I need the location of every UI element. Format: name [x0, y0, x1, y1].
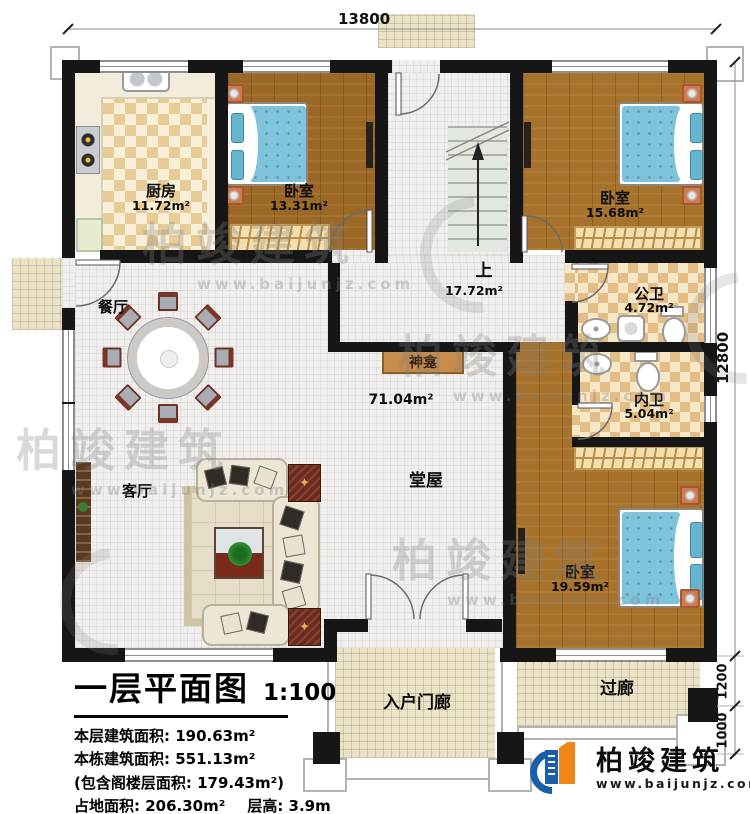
dimension-right: 12800: [714, 338, 732, 384]
logo-company-name: 柏竣建筑: [596, 747, 750, 777]
dining-chair: [103, 348, 122, 368]
bathroom-sink: [581, 318, 611, 340]
plan-scale: 1:100: [263, 680, 336, 706]
hall-label: 堂屋: [409, 466, 443, 491]
title-underline: [74, 715, 288, 718]
stat-building-area: 本栋建筑面积: 551.13m²: [74, 748, 374, 771]
nightstand: [680, 486, 700, 505]
window: [243, 60, 330, 73]
logo: 柏竣建筑 www.baijunjz.com: [528, 740, 750, 798]
corridor-column: [688, 688, 718, 722]
logo-icon: [528, 740, 588, 798]
living-label: 客厅: [122, 480, 152, 501]
bedroom-se-area: 19.59m²: [551, 579, 609, 594]
title-block: 一层平面图 1:100 本层建筑面积: 190.63m² 本栋建筑面积: 551…: [74, 662, 374, 814]
tv: [518, 528, 525, 574]
wall: [572, 437, 704, 447]
tv: [366, 122, 373, 168]
wall: [466, 619, 502, 632]
private-bath-area: 5.04m²: [624, 406, 673, 421]
wall: [328, 342, 520, 352]
window: [556, 648, 666, 662]
window: [100, 60, 188, 73]
dining-chair: [158, 292, 178, 311]
nightstand: [682, 186, 702, 205]
shower-unit: [617, 315, 645, 342]
floor-plan-page: ✦ ✦ 神龛: [0, 0, 750, 814]
window: [62, 404, 75, 470]
plan-title: 一层平面图: [74, 662, 249, 710]
side-table: ✦: [288, 608, 321, 646]
logo-website: www.baijunjz.com: [596, 776, 750, 791]
dining-table: [128, 318, 208, 398]
shrine-label: 神龛: [409, 352, 437, 372]
nightstand: [682, 84, 702, 103]
window: [62, 330, 75, 402]
bathroom-sink: [582, 353, 612, 375]
stat-floor-height: 层高: 3.9m: [247, 795, 330, 814]
dimension-right-1200: 1200: [716, 661, 731, 703]
stat-attic-area: (包含阁楼层面积: 179.43m²): [74, 772, 374, 795]
door-opening: [332, 250, 375, 263]
corridor-trim: [517, 726, 700, 740]
wall: [328, 250, 340, 352]
window: [125, 648, 273, 662]
dimension-top: 13800: [338, 10, 390, 28]
toilet: [634, 351, 658, 389]
wall: [375, 60, 388, 263]
door-opening: [572, 405, 580, 437]
kitchen-rug: [103, 92, 207, 250]
wardrobe: [574, 226, 702, 250]
wall: [100, 250, 332, 263]
dining-chair: [215, 348, 234, 368]
public-bath-area: 4.72m²: [624, 300, 673, 315]
sofa: [196, 458, 288, 502]
side-door-stoop: [12, 258, 62, 330]
tv-cabinet: [76, 462, 91, 562]
corridor-label: 过廊: [600, 674, 634, 699]
nightstand: [680, 589, 700, 608]
shrine-console: 神龛: [382, 350, 464, 374]
bedroom-nw-area: 13.31m²: [270, 198, 328, 213]
back-door-stoop: [378, 14, 475, 48]
fridge: [76, 218, 103, 252]
side-table: ✦: [288, 464, 321, 502]
entry-porch-label: 入户门廊: [383, 688, 451, 713]
porch-column-right: [497, 732, 524, 764]
window: [552, 60, 668, 73]
bed: [226, 102, 308, 186]
tv: [524, 122, 531, 168]
wardrobe: [230, 224, 330, 252]
stat-floor-area: 本层建筑面积: 190.63m²: [74, 725, 374, 748]
coffee-table: [214, 527, 264, 579]
kitchen-area: 11.72m²: [132, 198, 190, 213]
hall-area: 71.04m²: [368, 392, 433, 408]
wall: [565, 250, 717, 263]
stove: [76, 126, 100, 174]
stat-footprint: 占地面积: 206.30m²: [74, 795, 225, 814]
window: [704, 396, 717, 422]
door-opening: [392, 60, 440, 73]
dining-chair: [158, 404, 178, 423]
bed: [618, 102, 704, 186]
wall: [215, 60, 228, 263]
wall: [503, 342, 516, 648]
wall: [324, 619, 337, 662]
dining-label: 餐厅: [98, 296, 128, 317]
door-opening: [62, 258, 75, 308]
wardrobe: [574, 446, 704, 470]
armchair: [202, 604, 290, 646]
sofa: [272, 496, 320, 614]
bedroom-ne-area: 15.68m²: [586, 205, 644, 220]
door-opening: [565, 263, 578, 301]
